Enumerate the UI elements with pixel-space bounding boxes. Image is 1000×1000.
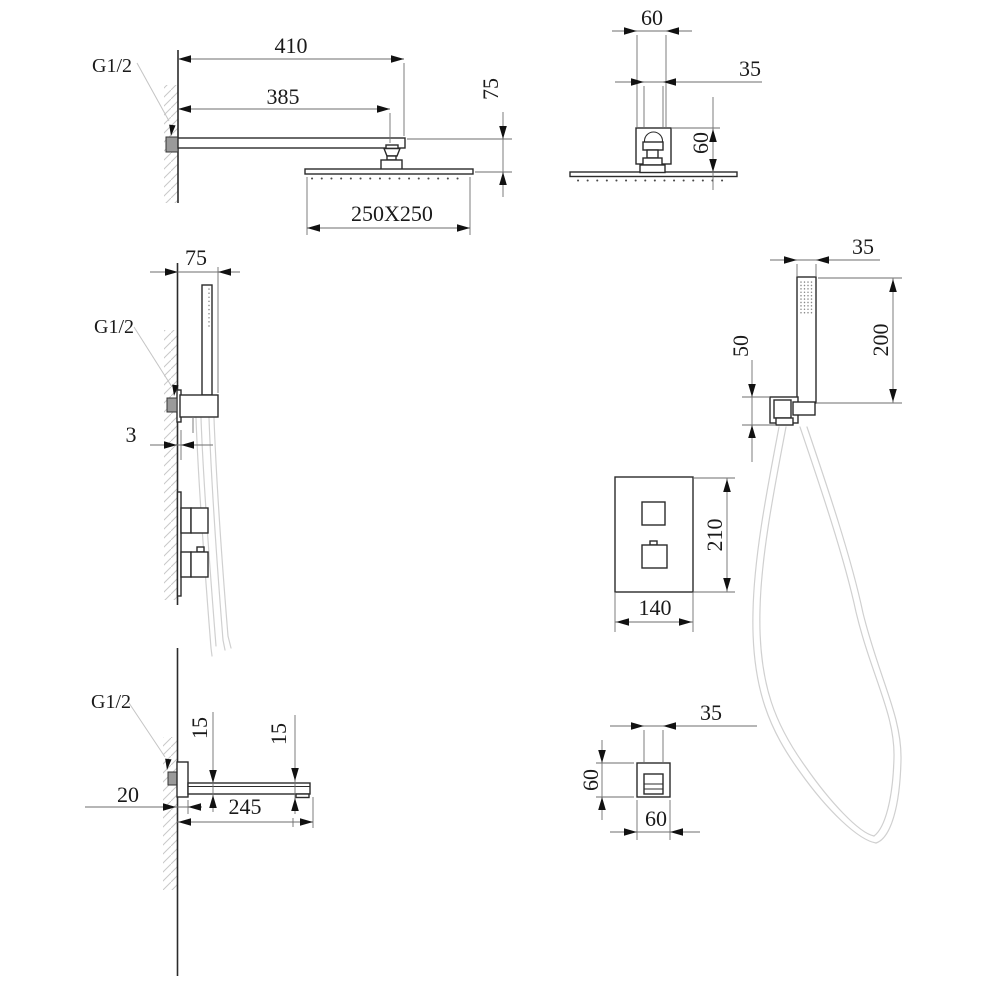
dim-35-top-label: 35 [739, 56, 761, 81]
dim-root-height: 15 [187, 712, 217, 812]
spout-front-view: 35 60 60 [578, 700, 757, 840]
dim-escutcheon-height: 60 [578, 740, 634, 820]
spout-side-view: 15 15 20 245 G1/2 [85, 691, 313, 828]
dim-60-left-label: 60 [578, 769, 603, 791]
rainhead-front-view: 60 35 60 [570, 5, 762, 190]
shower-head-plate [305, 169, 473, 174]
dim-250x250-label: 250X250 [351, 201, 433, 226]
dim-head-size: 250X250 [307, 177, 470, 235]
dim-410-label: 410 [275, 33, 308, 58]
dim-140-label: 140 [639, 595, 672, 620]
ball-joint [381, 145, 402, 170]
spout-outlet [296, 794, 309, 798]
dim-200-label: 200 [868, 324, 893, 357]
handshower-wand-front [797, 277, 816, 403]
dim-15-root-label: 15 [187, 717, 212, 739]
ceiling-bracket-front [636, 128, 671, 173]
dim-75-mid-label: 75 [185, 245, 207, 270]
dim-15-tip-label: 15 [266, 723, 291, 745]
temperature-knob [642, 545, 667, 568]
shower-hose-loop [753, 427, 901, 843]
dim-35-wand-label: 35 [852, 234, 874, 259]
wall-hatching [163, 85, 178, 890]
thread-label-g12-top: G1/2 [92, 55, 132, 77]
wall-supply-connector-mid [167, 398, 177, 412]
handshower-front-view: 35 200 50 [728, 234, 902, 462]
hose-strands-side-view [196, 418, 231, 656]
dim-3-label: 3 [126, 422, 137, 447]
dim-plate-width: 140 [615, 592, 693, 632]
dim-wand-width: 35 [770, 234, 880, 276]
dim-wall-offset: 75 [150, 245, 240, 393]
handshower-wand-side [202, 285, 212, 395]
valve-trim-plate [615, 477, 693, 592]
dim-tip-height: 15 [266, 715, 299, 814]
dim-plate-height: 210 [693, 478, 735, 592]
dim-head-drop: 75 [407, 78, 512, 197]
shower-arm [178, 138, 405, 148]
dim-50-label: 50 [728, 335, 753, 357]
diverter-knob [642, 502, 665, 525]
dim-arm-to-joint: 385 [178, 84, 390, 143]
shower-system-technical-drawing: 410 385 75 250X250 G1/2 [0, 0, 1000, 1000]
dim-60-right-label: 60 [688, 132, 713, 154]
dim-60-bottom-label: 60 [645, 806, 667, 831]
dim-245-label: 245 [229, 794, 262, 819]
dim-bracket-width: 60 [612, 5, 692, 127]
wall-supply-connector [166, 137, 178, 152]
dim-210-label: 210 [702, 519, 727, 552]
dim-35-outlet-label: 35 [700, 700, 722, 725]
rainhead-side-view: 410 385 75 250X250 G1/2 [92, 33, 512, 235]
thread-label-g12-bottom: G1/2 [91, 691, 131, 713]
dim-60-top-label: 60 [641, 5, 663, 30]
wall-supply-connector-bottom [168, 772, 177, 785]
thread-label-g12-mid: G1/2 [94, 316, 134, 338]
spout-escutcheon [177, 762, 188, 797]
drawing-canvas: 410 385 75 250X250 G1/2 [0, 0, 1000, 1000]
dim-outlet-width: 35 [610, 700, 757, 762]
dim-escutcheon-width: 60 [610, 800, 700, 840]
dim-75-label: 75 [478, 78, 503, 100]
mixer-front-view: 210 140 [615, 477, 735, 632]
dim-20-label: 20 [117, 782, 139, 807]
dim-holder-height: 50 [728, 335, 776, 462]
handshower-holder [180, 395, 218, 417]
dim-wand-length: 200 [817, 278, 902, 403]
spout-outlet-front [644, 774, 663, 794]
dim-385-label: 385 [267, 84, 300, 109]
